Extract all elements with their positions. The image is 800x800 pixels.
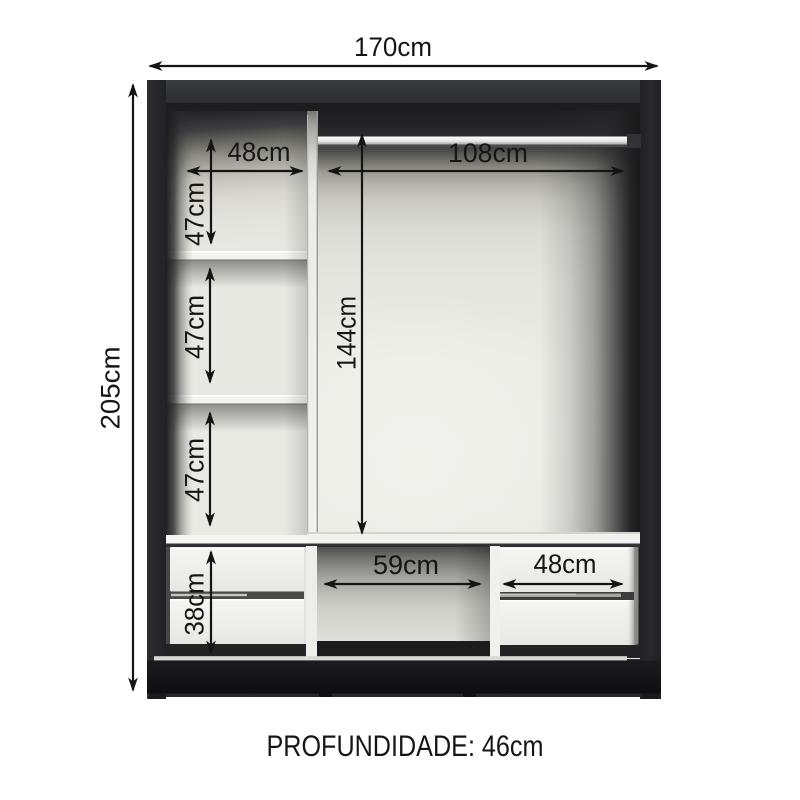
svg-text:47cm: 47cm [180, 182, 210, 246]
svg-text:48cm: 48cm [534, 549, 597, 579]
svg-text:108cm: 108cm [448, 138, 528, 168]
svg-text:47cm: 47cm [180, 295, 210, 359]
svg-text:PROFUNDIDADE: 46cm: PROFUNDIDADE: 46cm [267, 730, 544, 763]
svg-text:144cm: 144cm [332, 296, 362, 370]
svg-text:170cm: 170cm [354, 32, 432, 62]
svg-text:205cm: 205cm [96, 347, 126, 430]
svg-text:47cm: 47cm [180, 438, 210, 502]
svg-text:59cm: 59cm [373, 550, 439, 580]
svg-text:38cm: 38cm [180, 573, 210, 636]
svg-text:48cm: 48cm [228, 137, 291, 167]
